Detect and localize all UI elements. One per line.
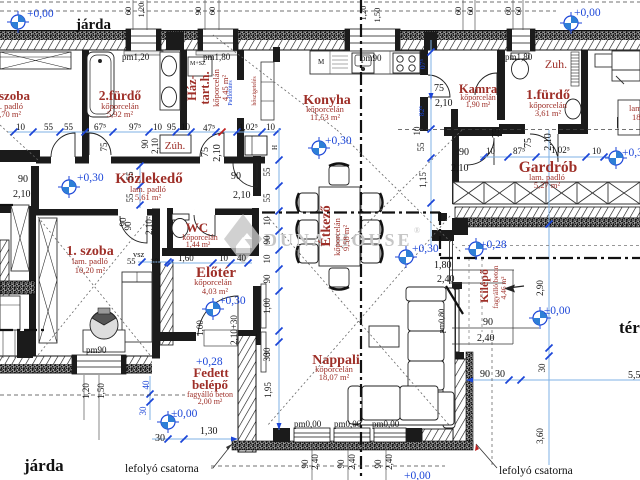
svg-text:5,5: 5,5: [628, 370, 640, 381]
svg-text:10: 10: [181, 122, 191, 132]
svg-text:10: 10: [266, 122, 276, 132]
svg-text:±0,00: ±0,00: [544, 305, 571, 317]
svg-text:10: 10: [262, 216, 272, 226]
svg-text:pm1,20: pm1,20: [122, 52, 150, 62]
svg-text:10: 10: [262, 254, 272, 264]
svg-text:M: M: [318, 58, 325, 66]
svg-text:2,40: 2,40: [437, 274, 455, 285]
svg-text:2,10: 2,10: [212, 144, 223, 162]
svg-text:90: 90: [231, 171, 241, 182]
svg-text:1,50: 1,50: [372, 8, 382, 23]
svg-text:1,20: 1,20: [81, 383, 91, 399]
svg-text:90: 90: [140, 139, 150, 149]
svg-text:60: 60: [513, 7, 523, 16]
svg-text:2,10: 2,10: [150, 138, 160, 154]
svg-text:2,40: 2,40: [310, 454, 320, 470]
svg-text:90: 90: [459, 147, 469, 158]
svg-text:pm0,00: pm0,00: [294, 419, 322, 429]
svg-text:30: 30: [138, 406, 148, 416]
svg-text:pm1,80: pm1,80: [505, 52, 533, 62]
svg-text:hőszigetelés: hőszigetelés: [252, 76, 258, 106]
svg-text:30: 30: [262, 352, 272, 362]
svg-text:1,80: 1,80: [434, 260, 452, 271]
svg-text:30: 30: [155, 433, 165, 444]
svg-text:90: 90: [336, 459, 346, 469]
svg-text:55: 55: [64, 122, 74, 132]
svg-text:10,20 m²: 10,20 m²: [75, 265, 106, 275]
svg-text:2,10: 2,10: [435, 98, 453, 109]
svg-text:Kilépő: Kilépő: [477, 269, 491, 303]
svg-text:90: 90: [118, 217, 128, 227]
svg-text:90: 90: [480, 369, 490, 380]
svg-text:90: 90: [18, 174, 28, 185]
svg-text:07⁵: 07⁵: [418, 59, 427, 70]
svg-text:40: 40: [237, 253, 247, 263]
svg-text:60: 60: [123, 7, 133, 16]
svg-text:10: 10: [486, 146, 496, 156]
svg-text:55: 55: [125, 171, 135, 181]
svg-text:10: 10: [412, 126, 422, 136]
svg-text:1,15: 1,15: [418, 172, 428, 188]
svg-text:75: 75: [434, 83, 444, 94]
svg-text:55: 55: [127, 256, 136, 266]
svg-text:1,00: 1,00: [262, 298, 272, 314]
svg-text:pm90: pm90: [361, 53, 382, 63]
svg-text:Padlófűtés: Padlófűtés: [227, 80, 234, 106]
svg-text:10: 10: [592, 146, 602, 156]
svg-text:55: 55: [416, 142, 426, 152]
svg-text:1,95: 1,95: [263, 382, 273, 398]
svg-text:75: 75: [99, 142, 109, 152]
svg-text:40: 40: [141, 380, 151, 390]
svg-text:17,70 m²: 17,70 m²: [0, 109, 21, 119]
svg-text:11,53 m²: 11,53 m²: [310, 112, 341, 122]
svg-text:+0,30: +0,30: [77, 172, 104, 184]
svg-text:+0,00: +0,00: [574, 7, 601, 19]
svg-text:18: 18: [632, 112, 640, 122]
svg-text:pm1,80: pm1,80: [203, 52, 231, 62]
svg-text:2,40: 2,40: [347, 454, 357, 470]
svg-text:1,00: 1,00: [195, 320, 205, 336]
svg-text:pm0,80: pm0,80: [437, 309, 446, 333]
svg-text:9,58 m²: 9,58 m²: [341, 224, 351, 251]
svg-text:+0,3: +0,3: [622, 147, 640, 159]
svg-text:+0,30: +0,30: [325, 135, 352, 147]
svg-text:+0,28: +0,28: [196, 356, 223, 368]
svg-text:60: 60: [465, 7, 475, 16]
svg-text:5,92 m²: 5,92 m²: [107, 109, 134, 119]
svg-text:30: 30: [537, 363, 547, 373]
svg-text:pm0,00: pm0,00: [372, 419, 400, 429]
svg-text:10: 10: [150, 256, 159, 266]
svg-text:2,10: 2,10: [13, 189, 31, 200]
svg-text:75: 75: [491, 128, 502, 138]
svg-text:60: 60: [503, 7, 513, 16]
svg-text:55: 55: [125, 193, 135, 203]
svg-text:1,60: 1,60: [178, 253, 194, 263]
svg-text:lefolyó csatorna: lefolyó csatorna: [499, 465, 573, 477]
svg-text:1,20: 1,20: [136, 3, 146, 18]
svg-text:2,10+30: 2,10+30: [229, 315, 239, 345]
svg-text:30: 30: [495, 369, 505, 380]
svg-text:2,00 m²: 2,00 m²: [198, 397, 223, 406]
svg-text:±0,00: ±0,00: [171, 408, 198, 420]
svg-text:3,60: 3,60: [535, 428, 545, 444]
svg-text:H: H: [271, 145, 279, 150]
svg-text:55: 55: [262, 167, 272, 177]
svg-text:10: 10: [16, 122, 26, 132]
svg-text:Ház-: Ház-: [185, 75, 199, 101]
svg-text:55: 55: [262, 193, 272, 203]
svg-text:1,44 m²: 1,44 m²: [186, 240, 211, 249]
svg-text:+0,30: +0,30: [412, 243, 439, 255]
svg-text:2,10: 2,10: [451, 163, 469, 174]
svg-text:1,50: 1,50: [96, 383, 106, 399]
svg-text:járda: járda: [23, 456, 64, 475]
svg-text:+0,00: +0,00: [27, 8, 54, 20]
svg-text:75: 75: [200, 147, 211, 157]
svg-text:2,90: 2,90: [535, 280, 545, 296]
svg-text:+0,00: +0,00: [404, 470, 431, 480]
svg-text:tart.h.: tart.h.: [198, 71, 212, 104]
svg-text:47⁵: 47⁵: [203, 123, 215, 133]
svg-text:Zuh.: Zuh.: [545, 57, 567, 71]
svg-text:2,10: 2,10: [144, 219, 154, 235]
svg-text:1,02⁵: 1,02⁵: [239, 122, 258, 132]
svg-text:95: 95: [167, 122, 177, 132]
svg-text:90: 90: [300, 459, 310, 469]
svg-text:1,90 m²: 1,90 m²: [466, 100, 491, 109]
svg-text:5,27 m²: 5,27 m²: [534, 180, 561, 190]
svg-text:2,10: 2,10: [233, 190, 251, 201]
svg-text:90: 90: [262, 274, 272, 284]
svg-text:pm0,00: pm0,00: [334, 419, 362, 429]
svg-text:+0,28: +0,28: [480, 239, 507, 251]
svg-text:82⁵: 82⁵: [417, 106, 426, 117]
svg-text:1,30: 1,30: [200, 426, 218, 437]
svg-text:3,61 m²: 3,61 m²: [535, 108, 562, 118]
svg-text:5,61 m²: 5,61 m²: [135, 192, 162, 202]
svg-text:2,10: 2,10: [543, 133, 554, 151]
svg-text:60: 60: [207, 7, 217, 16]
svg-text:®: ®: [414, 226, 420, 235]
svg-text:2,40: 2,40: [384, 454, 394, 470]
svg-text:90: 90: [483, 317, 493, 328]
svg-text:67⁵: 67⁵: [94, 122, 106, 132]
svg-text:tér: tér: [619, 318, 640, 337]
svg-text:pm90: pm90: [86, 345, 107, 355]
svg-text:járda: járda: [75, 17, 111, 33]
svg-text:2,40: 2,40: [477, 333, 495, 344]
svg-text:4,46 m²: 4,46 m²: [499, 276, 508, 300]
svg-text:1,20: 1,20: [358, 6, 368, 21]
svg-text:+0,30: +0,30: [219, 295, 246, 307]
svg-text:10: 10: [219, 253, 229, 263]
svg-text:90: 90: [373, 459, 383, 469]
svg-text:18,07 m²: 18,07 m²: [319, 372, 350, 382]
svg-text:M+SZ: M+SZ: [190, 61, 206, 67]
svg-text:lefolyó csatorna: lefolyó csatorna: [125, 463, 199, 475]
svg-text:60: 60: [453, 7, 463, 16]
svg-text:10: 10: [153, 122, 163, 132]
svg-text:90: 90: [193, 7, 203, 16]
svg-text:90: 90: [262, 235, 272, 245]
svg-text:75: 75: [523, 138, 534, 148]
svg-text:97⁵: 97⁵: [129, 122, 141, 132]
svg-text:55: 55: [44, 122, 54, 132]
svg-text:Zúh.: Zúh.: [165, 140, 186, 152]
